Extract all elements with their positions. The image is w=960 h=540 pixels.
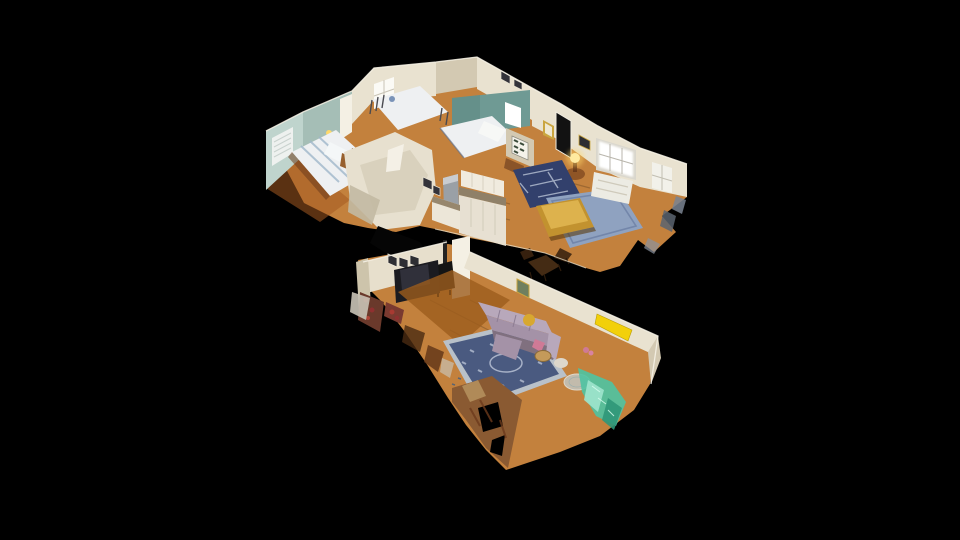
- pink-flowers-2: [589, 351, 594, 356]
- red-object-1: [390, 310, 395, 315]
- red-object-2: [395, 316, 399, 320]
- mustard-pouf: [523, 314, 535, 326]
- stove-pipe: [443, 240, 447, 264]
- red-item-2: [370, 308, 375, 313]
- dollhouse-render: [0, 0, 960, 540]
- pink-flowers-1: [583, 347, 589, 353]
- seafoam-door-white: [340, 94, 352, 140]
- white-side-table: [554, 358, 568, 368]
- blue-pillow: [389, 96, 395, 102]
- dollhouse-3d-viewport[interactable]: [0, 0, 960, 540]
- glowing-lamp: [570, 153, 580, 163]
- wicker-basket: [535, 351, 551, 362]
